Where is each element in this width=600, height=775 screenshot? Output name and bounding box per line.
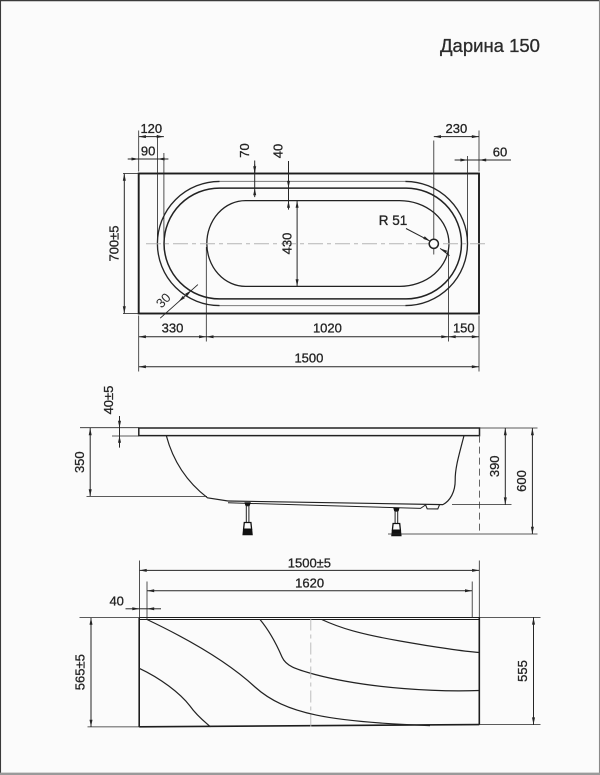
svg-text:330: 330 (162, 321, 184, 336)
svg-text:555: 555 (515, 660, 530, 682)
svg-text:700±5: 700±5 (107, 225, 122, 261)
svg-text:600: 600 (514, 470, 529, 492)
svg-text:430: 430 (280, 233, 295, 255)
svg-text:R 51: R 51 (379, 213, 408, 228)
svg-text:390: 390 (487, 455, 502, 477)
svg-text:565±5: 565±5 (73, 654, 88, 690)
svg-text:40: 40 (271, 144, 286, 158)
svg-text:90: 90 (141, 144, 155, 159)
svg-text:60: 60 (493, 145, 507, 160)
svg-text:70: 70 (237, 143, 252, 157)
svg-text:150: 150 (453, 321, 475, 336)
svg-text:1020: 1020 (313, 321, 342, 336)
svg-text:230: 230 (446, 121, 468, 136)
svg-text:1500±5: 1500±5 (288, 555, 331, 570)
svg-text:40±5: 40±5 (101, 386, 116, 415)
svg-text:350: 350 (72, 451, 87, 473)
svg-text:40: 40 (109, 593, 123, 608)
svg-text:1500: 1500 (294, 351, 323, 366)
svg-text:1620: 1620 (295, 576, 324, 591)
svg-text:Дарина 150: Дарина 150 (440, 35, 540, 56)
svg-text:120: 120 (140, 121, 162, 136)
